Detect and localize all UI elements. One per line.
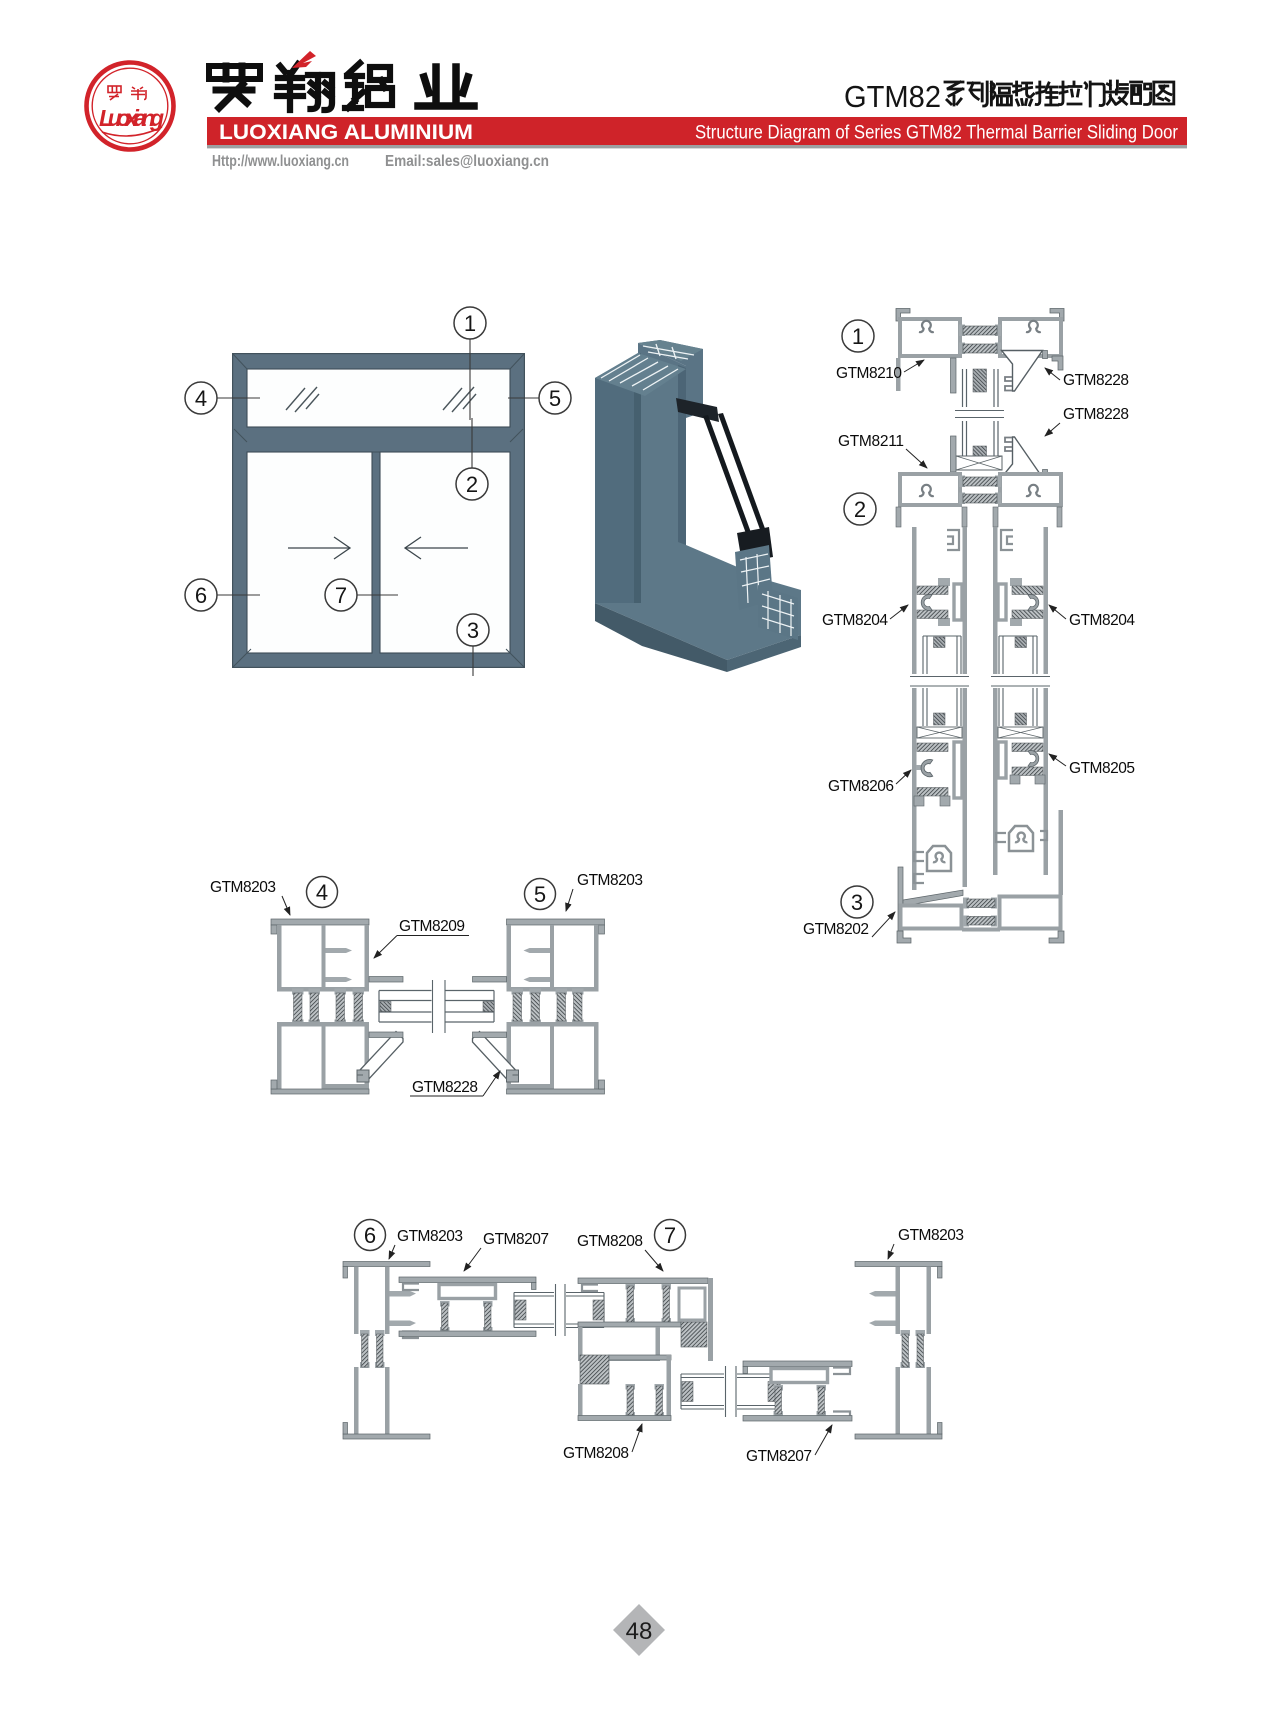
svg-text:Luoxiang: Luoxiang [99,105,164,131]
svg-text:1: 1 [852,324,864,349]
svg-text:GTM8228: GTM8228 [1063,372,1129,389]
svg-text:4: 4 [195,386,207,411]
svg-text:LUOXIANG ALUMINIUM: LUOXIANG ALUMINIUM [219,121,473,144]
svg-text:GTM8204: GTM8204 [822,612,888,629]
svg-text:GTM8228: GTM8228 [1063,406,1129,423]
svg-text:7: 7 [335,583,347,608]
svg-text:GTM8228: GTM8228 [412,1079,478,1096]
svg-text:GTM8211: GTM8211 [838,433,904,450]
svg-text:Http://www.luoxiang.cn: Http://www.luoxiang.cn [212,153,349,170]
svg-text:3: 3 [851,890,863,915]
svg-text:GTM8210: GTM8210 [836,365,902,382]
svg-text:48: 48 [626,1618,653,1645]
svg-text:GTM8208: GTM8208 [577,1233,643,1250]
svg-text:5: 5 [549,386,561,411]
svg-text:GTM8209: GTM8209 [399,918,465,935]
svg-text:5: 5 [534,882,546,907]
svg-text:Structure Diagram of Series GT: Structure Diagram of Series GTM82 Therma… [695,123,1179,144]
svg-text:GTM8203: GTM8203 [577,872,643,889]
svg-text:Email:sales@luoxiang.cn: Email:sales@luoxiang.cn [385,153,549,170]
svg-text:3: 3 [467,618,479,643]
svg-text:GTM8202: GTM8202 [803,921,869,938]
svg-text:GTM8203: GTM8203 [898,1227,964,1244]
svg-text:7: 7 [664,1223,676,1248]
svg-text:GTM8204: GTM8204 [1069,612,1135,629]
svg-text:GTM8207: GTM8207 [746,1448,812,1465]
svg-text:GTM8208: GTM8208 [563,1445,629,1462]
svg-text:4: 4 [316,880,328,905]
svg-text:GTM82: GTM82 [844,79,941,114]
svg-text:6: 6 [364,1223,376,1248]
svg-text:GTM8203: GTM8203 [397,1228,463,1245]
svg-text:2: 2 [466,472,478,497]
svg-text:GTM8207: GTM8207 [483,1231,549,1248]
svg-text:GTM8203: GTM8203 [210,879,276,896]
svg-text:2: 2 [854,497,866,522]
svg-text:GTM8205: GTM8205 [1069,760,1135,777]
svg-text:GTM8206: GTM8206 [828,778,894,795]
svg-text:6: 6 [195,583,207,608]
svg-text:1: 1 [464,311,476,336]
